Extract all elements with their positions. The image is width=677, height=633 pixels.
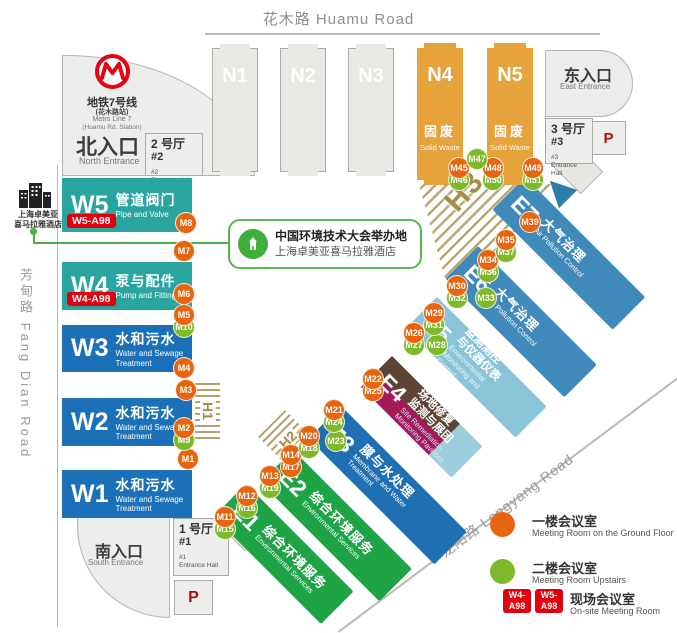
- hall-w4: W4 泵与配件 Pump and Fittings W4-A98: [62, 262, 192, 310]
- hall-n3: N3: [348, 48, 394, 172]
- meeting-room-marker-m21: M21: [323, 399, 345, 421]
- meeting-room-marker-m22: M22: [362, 368, 384, 390]
- huamu-road-zh: 花木路: [263, 11, 311, 28]
- legend-onsite-badge-w5: W5-A98: [535, 589, 563, 613]
- legend-ground-floor-en: Meeting Room on the Ground Floor: [532, 528, 674, 538]
- hall2-zh: 2 号厅: [151, 137, 197, 151]
- meeting-room-marker-m29: M29: [423, 302, 445, 324]
- fangdian-road-zh: 芳甸路: [18, 268, 33, 316]
- hall-w1: W1 水和污水 Water and Sewage Treatment: [62, 470, 192, 518]
- hall3-tiny: #3 Entrance Hall: [551, 154, 587, 178]
- meeting-room-marker-m33: M33: [475, 287, 497, 309]
- east-entrance-en: East Entrance: [560, 82, 610, 91]
- huamu-road-line: [205, 33, 600, 35]
- callout-line2: 上海卓美亚喜马拉雅酒店: [275, 245, 407, 260]
- south-entrance-en: South Entrance: [88, 558, 143, 567]
- metro-logo-icon: [94, 53, 131, 90]
- meeting-room-marker-m23: M23: [325, 430, 347, 452]
- parking-east: P: [591, 121, 626, 155]
- hall1-tiny: #1 Entrance Hall: [179, 554, 223, 570]
- onsite-badge-w5: W5-A98: [67, 214, 116, 228]
- huamu-road-label: 花木路 Huamu Road: [0, 8, 677, 29]
- hotel-name-line2: 喜马拉雅酒店: [6, 219, 70, 230]
- legend-upstairs-en: Meeting Room Upstairs: [532, 575, 626, 585]
- hotel-connector-line-h: [33, 242, 228, 244]
- callout-line1: 中国环境技术大会举办地: [275, 228, 407, 244]
- hall-w5: W5 管道阀门 Pipe and Valve W5-A98: [62, 178, 192, 232]
- meeting-room-marker-m2: M2: [173, 417, 195, 439]
- fangdian-road-label: 芳甸路 Fang Dian Road: [16, 268, 35, 459]
- hall3-num: #3: [551, 136, 587, 149]
- meeting-room-marker-m30: M30: [446, 275, 468, 297]
- conference-venue-callout: 中国环境技术大会举办地 上海卓美亚喜马拉雅酒店: [228, 219, 422, 269]
- entrance-hall-3: 3 号厅 #3 #3 Entrance Hall: [545, 118, 593, 164]
- meeting-room-marker-m7: M7: [173, 240, 195, 262]
- meeting-room-marker-m11: M11: [214, 506, 236, 528]
- legend-onsite-badge-w4: W4-A98: [503, 589, 531, 613]
- hotel-badge-icon: [238, 229, 268, 259]
- meeting-room-marker-m12: M12: [236, 485, 258, 507]
- hall-n2: N2: [280, 48, 326, 172]
- meeting-room-marker-m4: M4: [173, 357, 195, 379]
- hall2-num: #2: [151, 151, 197, 164]
- fangdian-road-en: Fang Dian Road: [18, 323, 33, 460]
- meeting-room-marker-m47: M47: [466, 148, 488, 170]
- metro-station-en: (Huamu Rd. Station): [62, 124, 162, 131]
- entrance-hall-2: 2 号厅 #2 #2 Entrance Hall: [145, 133, 203, 176]
- meeting-room-marker-m28: M28: [426, 334, 448, 356]
- meeting-room-marker-m13: M13: [259, 465, 281, 487]
- meeting-room-marker-m20: M20: [298, 425, 320, 447]
- hall-n1: N1: [212, 48, 258, 172]
- meeting-room-marker-m39: M39: [519, 211, 541, 233]
- meeting-room-marker-m5: M5: [173, 304, 195, 326]
- meeting-room-marker-m49: M49: [522, 157, 544, 179]
- meeting-room-marker-m8: M8: [175, 212, 197, 234]
- onsite-badge-w4: W4-A98: [67, 292, 116, 306]
- hatch-area-h1: H1: [195, 383, 220, 439]
- hall1-num: #1: [179, 536, 223, 549]
- meeting-room-marker-m6: M6: [173, 283, 195, 305]
- legend-ground-floor-dot: [490, 512, 515, 537]
- parking-south: P: [174, 580, 213, 615]
- legend-upstairs-dot: [490, 559, 515, 584]
- hall3-zh: 3 号厅: [551, 122, 587, 136]
- meeting-room-marker-m3: M3: [175, 379, 197, 401]
- metro-line-en: Metro Line 7: [62, 116, 162, 123]
- north-entrance-en: North Entrance: [79, 156, 140, 166]
- hotel-buildings-icon: [16, 180, 54, 213]
- meeting-room-marker-m1: M1: [177, 448, 199, 470]
- legend-onsite-en: On-site Meeting Room: [570, 606, 660, 616]
- meeting-room-marker-m35: M35: [495, 229, 517, 251]
- meeting-room-marker-m26: M26: [403, 322, 425, 344]
- huamu-road-en: Huamu Road: [316, 11, 414, 28]
- expo-floor-map: 花木路 Huamu Road 芳甸路 Fang Dian Road 龙阳路 Lo…: [0, 0, 677, 633]
- fangdian-road-line: [57, 165, 58, 627]
